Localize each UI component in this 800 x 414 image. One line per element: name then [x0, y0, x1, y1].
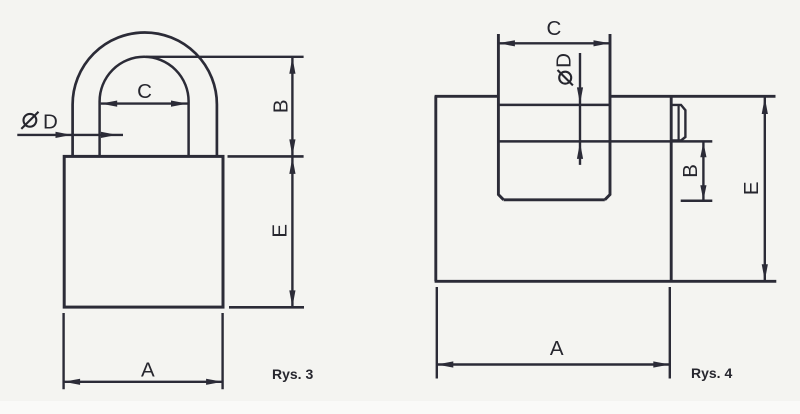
- svg-text:B: B: [679, 164, 702, 178]
- svg-text:Rys. 4: Rys. 4: [691, 365, 732, 381]
- svg-text:C: C: [546, 17, 561, 40]
- svg-text:E: E: [269, 224, 292, 238]
- svg-text:A: A: [550, 337, 564, 360]
- svg-text:A: A: [141, 358, 155, 381]
- svg-text:D: D: [43, 111, 58, 134]
- svg-text:Rys. 3: Rys. 3: [272, 366, 313, 382]
- svg-text:B: B: [269, 99, 292, 113]
- svg-text:C: C: [137, 80, 152, 103]
- svg-text:E: E: [740, 181, 763, 195]
- svg-text:D: D: [552, 53, 575, 68]
